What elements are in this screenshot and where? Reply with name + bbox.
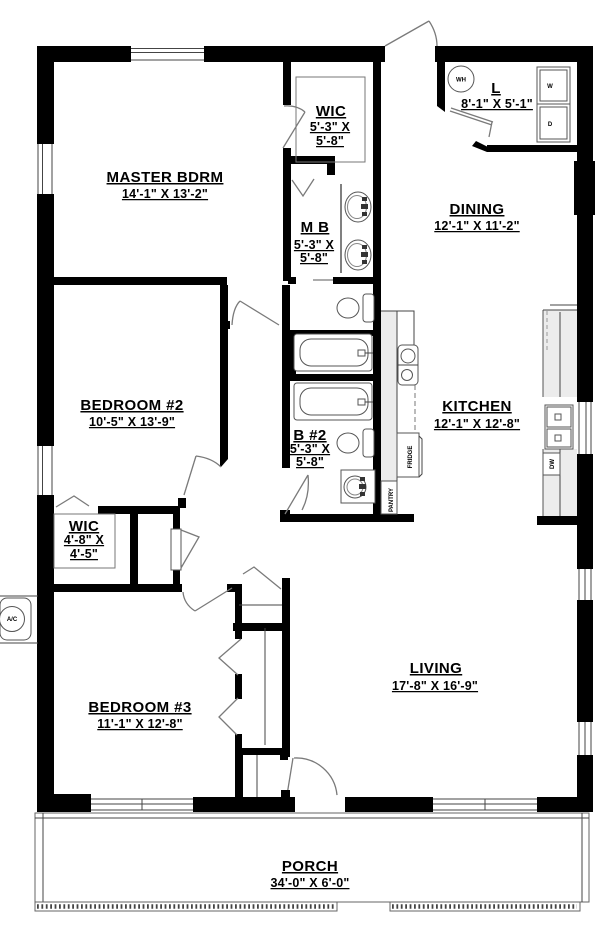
svg-text:WIC: WIC (316, 103, 346, 120)
svg-text:14'-1" X 13'-2": 14'-1" X 13'-2" (122, 187, 208, 201)
svg-text:5'-8": 5'-8" (300, 251, 328, 265)
svg-text:LIVING: LIVING (410, 660, 462, 677)
svg-text:BEDROOM #3: BEDROOM #3 (88, 699, 191, 716)
svg-text:5'-3" X: 5'-3" X (310, 120, 351, 134)
svg-text:12'-1" X 12'-8": 12'-1" X 12'-8" (434, 417, 520, 431)
svg-text:17'-8" X 16'-9": 17'-8" X 16'-9" (392, 679, 478, 693)
svg-text:KITCHEN: KITCHEN (442, 398, 511, 415)
svg-text:WH: WH (456, 78, 466, 84)
svg-text:5'-3" X: 5'-3" X (294, 238, 335, 252)
svg-text:5'-8": 5'-8" (296, 455, 324, 469)
svg-text:DINING: DINING (450, 201, 505, 218)
svg-text:11'-1" X 12'-8": 11'-1" X 12'-8" (97, 717, 182, 731)
svg-text:12'-1" X 11'-2": 12'-1" X 11'-2" (434, 219, 519, 233)
svg-text:4'-8" X: 4'-8" X (64, 533, 105, 547)
svg-text:4'-5": 4'-5" (70, 547, 98, 561)
svg-text:A/C: A/C (7, 617, 18, 623)
svg-text:5'-8": 5'-8" (316, 134, 344, 148)
svg-text:8'-1" X 5'-1": 8'-1" X 5'-1" (461, 97, 533, 111)
svg-text:M B: M B (301, 219, 330, 236)
svg-text:DW: DW (550, 459, 556, 469)
svg-text:MASTER BDRM: MASTER BDRM (107, 169, 224, 186)
svg-text:D: D (548, 122, 553, 128)
svg-text:FRIDGE: FRIDGE (408, 446, 414, 469)
svg-text:34'-0" X 6'-0": 34'-0" X 6'-0" (271, 876, 350, 890)
svg-text:L: L (491, 80, 501, 97)
svg-text:PANTRY: PANTRY (389, 488, 395, 512)
svg-text:PORCH: PORCH (282, 858, 338, 875)
svg-text:10'-5" X 13'-9": 10'-5" X 13'-9" (89, 415, 175, 429)
svg-text:W: W (547, 84, 553, 90)
svg-text:BEDROOM #2: BEDROOM #2 (80, 397, 183, 414)
svg-text:5'-3" X: 5'-3" X (290, 442, 331, 456)
